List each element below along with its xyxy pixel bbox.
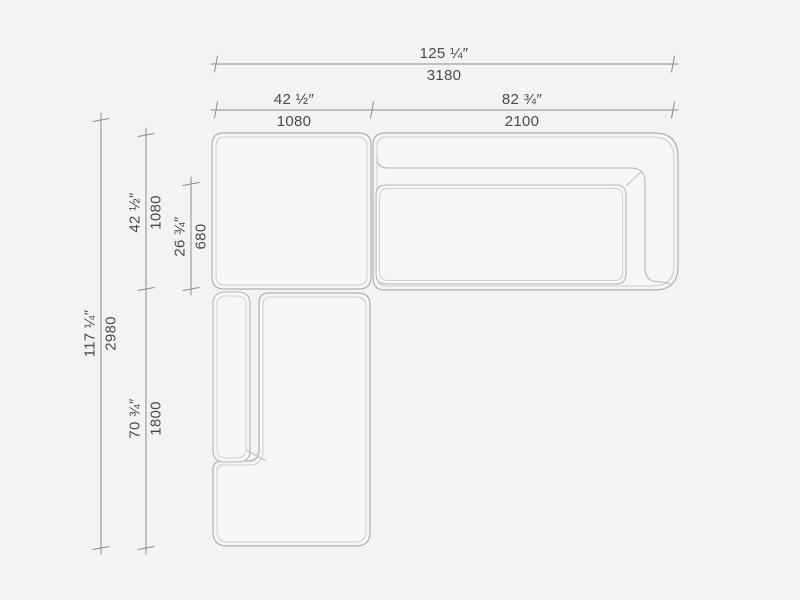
- sofa-seat-cushion: [376, 185, 626, 284]
- corner-module-shape: [212, 133, 371, 289]
- plan-linework: [0, 0, 800, 600]
- dim-label-overall-width-mm: 3180: [374, 67, 514, 84]
- dim-label-corner-depth-mm: 1080: [148, 143, 165, 283]
- dim-label-sofa-width-mm: 2100: [452, 113, 592, 130]
- dim-label-corner-width-mm: 1080: [224, 113, 364, 130]
- dim-label-corner-depth-inches: 42 ½″: [127, 143, 144, 283]
- dim-label-seat-depth-inches: 26 ¾″: [172, 167, 189, 307]
- chaise-module-shape: [213, 292, 370, 546]
- dim-label-overall-depth-mm: 2980: [103, 264, 120, 404]
- dim-label-corner-width-inches: 42 ½″: [224, 91, 364, 108]
- dim-label-chaise-length-inches: 70 ¾″: [127, 349, 144, 489]
- dim-label-sofa-width-inches: 82 ¾″: [452, 91, 592, 108]
- sofa-dimension-drawing: 125 ¼″ 3180 42 ½″ 1080 82 ¾″ 2100 117 ¼″…: [0, 0, 800, 600]
- dim-label-overall-depth-inches: 117 ¼″: [82, 264, 99, 404]
- dim-label-chaise-length-mm: 1800: [148, 349, 165, 489]
- sofa-section-shape: [373, 133, 678, 290]
- dim-label-overall-width-inches: 125 ¼″: [374, 45, 514, 62]
- chaise-backrest-cushion: [213, 292, 250, 462]
- dim-label-seat-depth-mm: 680: [193, 167, 210, 307]
